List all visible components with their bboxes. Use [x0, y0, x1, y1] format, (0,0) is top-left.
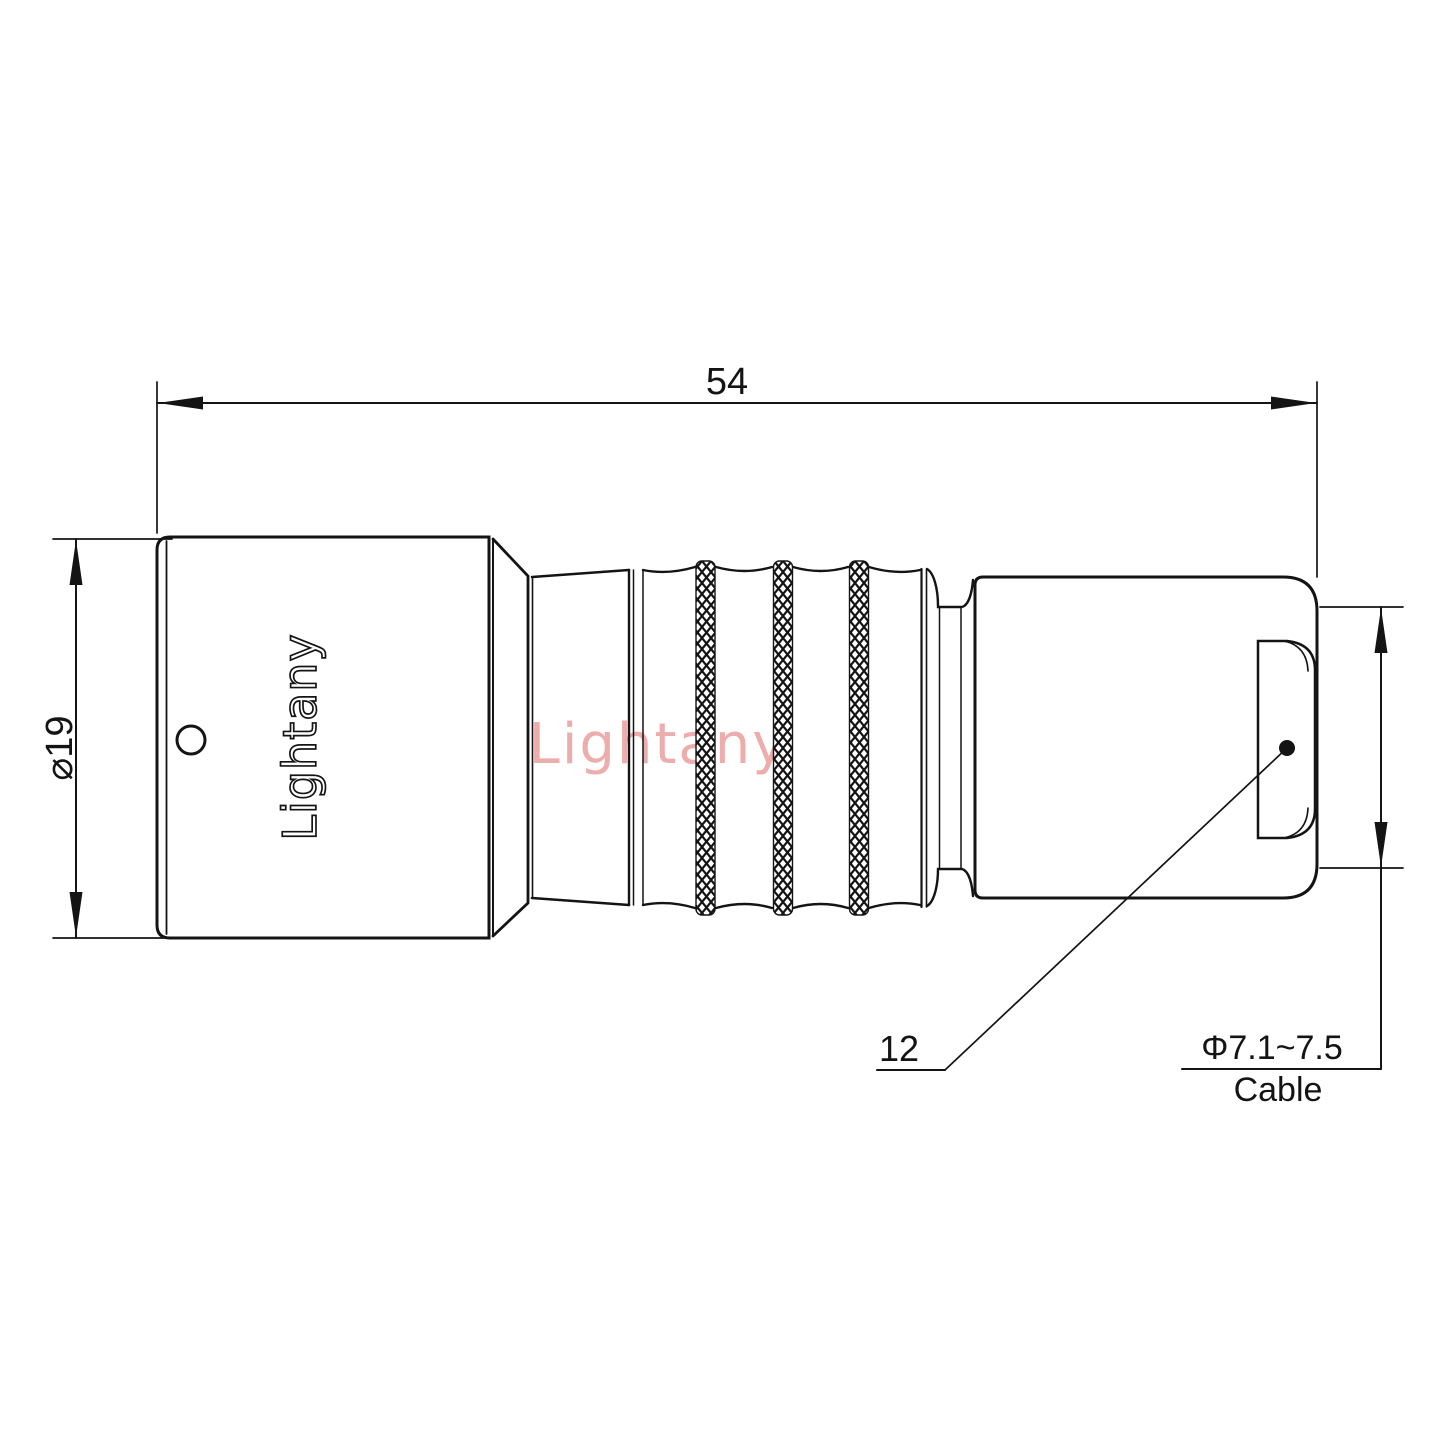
technical-drawing-page: Lightany Lightany 54: [0, 0, 1440, 1440]
arrowhead-down: [1375, 822, 1388, 867]
neck-bottom-profile: [927, 869, 973, 906]
body-chamfer: [493, 539, 533, 936]
cable-diameter-value: Φ7.1~7.5: [1201, 1029, 1343, 1067]
cable-bushing: [1258, 641, 1315, 838]
body-hole: [177, 726, 205, 754]
bushing-ref-value: 12: [879, 1028, 919, 1069]
body-engraving: Lightany: [273, 633, 327, 840]
arrowhead-up: [70, 540, 83, 585]
cable-label: Cable: [1234, 1071, 1323, 1109]
watermark: Lightany: [529, 712, 788, 777]
neck-top-profile: [927, 569, 973, 607]
cable-bushing-outline: [1258, 641, 1315, 838]
arrowhead-left: [158, 397, 203, 410]
knurl-band-3: [850, 561, 869, 915]
flare-top-edge: [532, 570, 629, 577]
chamfer-outline: [493, 539, 528, 936]
dim-diameter-value: ⌀19: [39, 715, 81, 780]
knurl-band-1: [696, 561, 715, 915]
connector-technical-drawing: Lightany Lightany 54: [0, 0, 1440, 1440]
rear-neck: [927, 569, 973, 906]
dim-length-value: 54: [706, 361, 748, 403]
arrowhead-down: [70, 892, 83, 937]
arrowhead-up: [1375, 608, 1388, 653]
dim-body-diameter: ⌀19: [39, 539, 172, 938]
knurl-band-2: [774, 561, 793, 915]
flare-bottom-edge: [532, 898, 629, 905]
arrowhead-right: [1271, 397, 1316, 410]
